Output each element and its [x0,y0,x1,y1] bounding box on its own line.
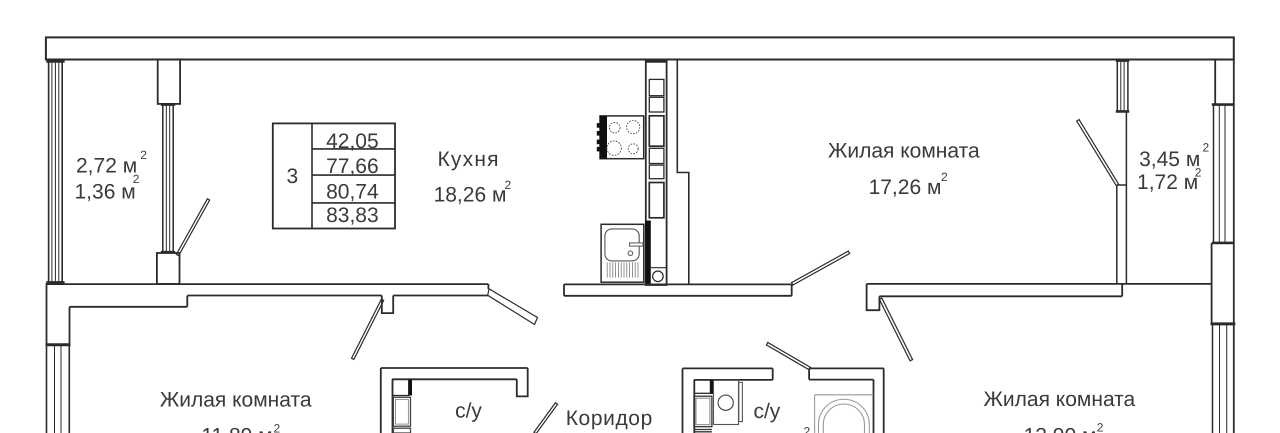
svg-text:2: 2 [941,170,948,184]
svg-text:2,72 м: 2,72 м [76,154,137,177]
svg-text:Жилая комната: Жилая комната [160,389,312,412]
svg-text:2: 2 [505,178,512,192]
svg-text:2: 2 [1097,421,1104,433]
svg-text:Жилая комната: Жилая комната [984,388,1136,411]
svg-text:2: 2 [1203,141,1210,155]
svg-text:11,89 м: 11,89 м [201,425,272,433]
svg-text:42,05: 42,05 [326,130,379,153]
svg-text:1,36 м: 1,36 м [75,180,136,203]
svg-text:с/у: с/у [455,400,482,423]
svg-text:83,83: 83,83 [326,204,379,227]
svg-text:Кухня: Кухня [437,148,499,171]
svg-text:Коридор: Коридор [566,407,653,430]
svg-text:3: 3 [287,165,299,188]
svg-text:2: 2 [274,422,281,433]
svg-text:2: 2 [804,425,811,433]
svg-text:3,45 м: 3,45 м [1139,148,1200,171]
svg-text:12,90 м: 12,90 м [1024,425,1097,433]
svg-text:Жилая комната: Жилая комната [828,140,980,163]
svg-text:1,72 м: 1,72 м [1137,171,1198,194]
svg-text:2: 2 [140,148,147,162]
svg-text:2: 2 [133,172,140,186]
svg-text:17,26 м: 17,26 м [869,176,942,199]
svg-text:80,74: 80,74 [326,180,379,203]
svg-text:с/у: с/у [753,400,780,423]
svg-text:77,66: 77,66 [326,155,379,178]
svg-text:18,26 м: 18,26 м [434,184,507,207]
svg-text:2: 2 [1195,166,1202,180]
